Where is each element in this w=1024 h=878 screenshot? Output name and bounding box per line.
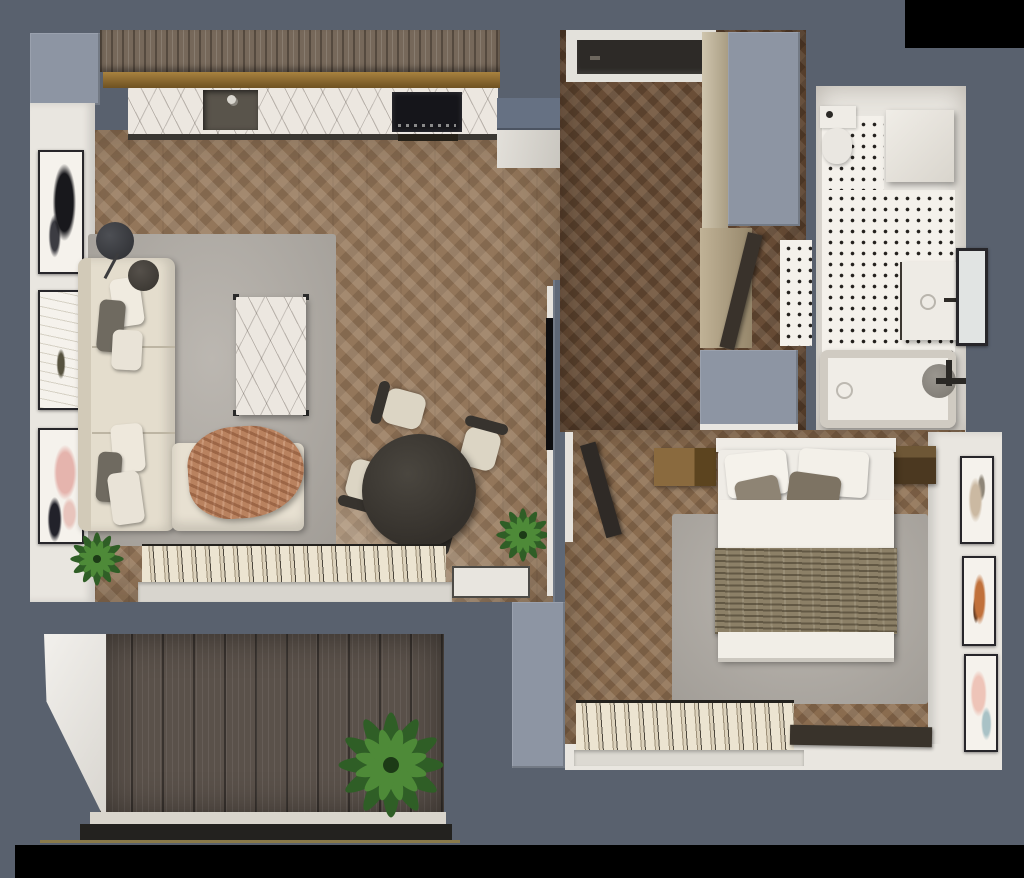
floorplan-canvas xyxy=(0,0,1024,878)
bed-duvet-bottom xyxy=(718,632,894,658)
living-window-sill xyxy=(138,582,452,602)
side-table xyxy=(128,260,159,291)
bathroom-mirror xyxy=(956,248,988,346)
art-frame-living-1 xyxy=(38,150,84,274)
bed-duvet-top xyxy=(718,500,894,550)
bedroom-left-block xyxy=(512,602,565,768)
balcony-plant xyxy=(334,708,448,822)
balcony-side-wall xyxy=(44,634,106,822)
closet-bottom xyxy=(700,350,798,426)
toilet-tank xyxy=(820,106,856,128)
kitchen-cabinets xyxy=(100,30,500,72)
door-mat xyxy=(452,566,530,598)
sofa-backrest xyxy=(78,258,91,531)
ac-unit-box xyxy=(30,33,100,105)
bath-shower-bar xyxy=(946,360,952,386)
void-bottom xyxy=(15,845,1024,878)
toilet-bowl xyxy=(822,128,852,164)
toilet-flush-button xyxy=(826,111,833,118)
bathroom-doorway-tile xyxy=(780,240,812,346)
bedroom-door-frame xyxy=(565,432,573,542)
potted-plant xyxy=(68,530,126,588)
void-top-right xyxy=(905,0,1024,48)
bedroom-window-blinds xyxy=(576,703,794,753)
bedroom-window-sill xyxy=(574,750,804,766)
basin-drain xyxy=(920,294,936,310)
wardrobe-tall xyxy=(702,32,728,228)
oven-vent xyxy=(398,134,458,141)
potted-plant xyxy=(494,506,552,564)
sofa-pillow-white xyxy=(111,329,143,371)
balcony-edge-light xyxy=(40,840,460,843)
runner-mat xyxy=(790,725,932,747)
cooktop-controls xyxy=(398,124,456,127)
bathtub-drain xyxy=(836,382,853,399)
art-frame-bedroom-3 xyxy=(964,654,998,752)
kitchen-faucet xyxy=(227,95,236,104)
washing-machine xyxy=(886,110,954,182)
closet-top xyxy=(728,32,800,226)
fridge-cabinet-front xyxy=(497,130,569,168)
art-frame-bedroom-2 xyxy=(962,556,996,646)
entrance-door-handle xyxy=(590,56,600,60)
living-window-blinds xyxy=(142,546,446,584)
wall-mounted-tv xyxy=(546,318,553,450)
nightstand-left xyxy=(654,448,716,486)
bed-frame-foot xyxy=(718,658,894,662)
coffee-table xyxy=(236,297,306,415)
art-frame-bedroom-1 xyxy=(960,456,994,544)
balcony-railing-frame xyxy=(80,824,452,840)
bed-throw xyxy=(715,548,897,634)
brass-backsplash xyxy=(103,72,500,88)
dining-table xyxy=(362,434,476,548)
